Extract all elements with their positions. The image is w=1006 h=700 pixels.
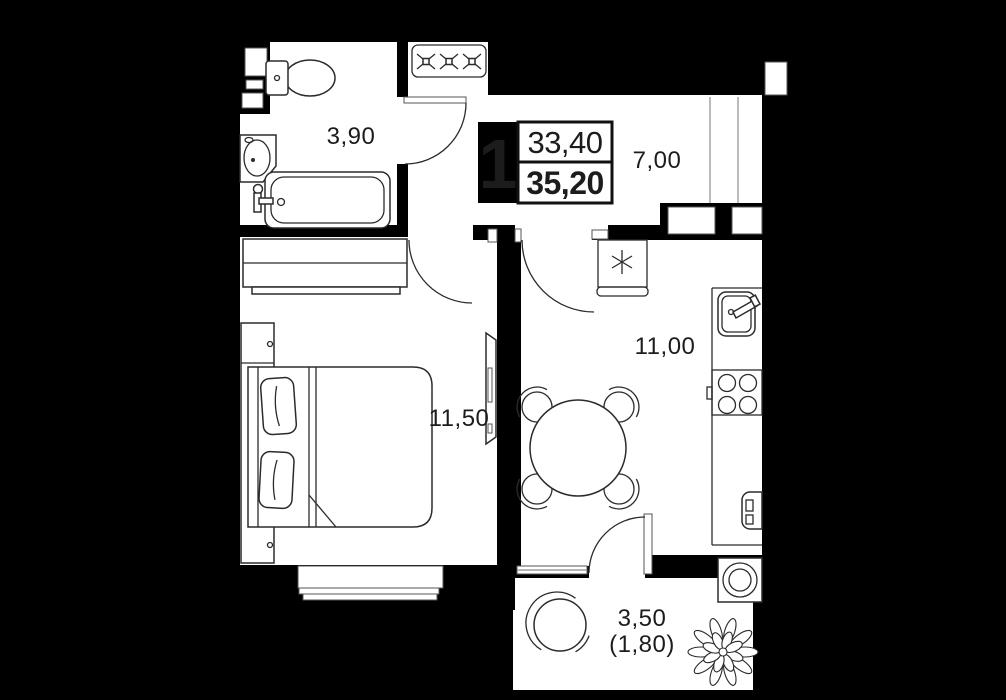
pillow-icon	[260, 377, 297, 435]
wall-bedroom-kitchen	[497, 237, 512, 578]
legend-living-area: 33,40	[527, 125, 602, 160]
kitchen-area-label: 11,00	[635, 333, 696, 360]
bathroom-door-opening	[397, 97, 408, 164]
ventilation-shaft-b	[732, 207, 762, 234]
balcony-window	[517, 566, 587, 574]
washing-machine-icon	[718, 558, 762, 602]
wall-panel-icon	[742, 492, 762, 529]
wall-bathroom-right-upper	[397, 42, 408, 97]
dresser-icon	[243, 239, 407, 294]
door-frame-kitchen-left	[515, 229, 521, 242]
bathroom-shaft-block	[236, 42, 270, 114]
door-frame-bedroom	[488, 229, 497, 242]
wall-hall-kitchen	[608, 225, 668, 240]
bedroom-window	[298, 566, 443, 600]
legend: 1 33,40 35,20	[478, 122, 612, 203]
kitchen-sink-icon	[718, 292, 760, 336]
legend-room-count: 1	[479, 125, 518, 203]
wall-window-sill-strip	[513, 574, 589, 578]
bedroom-door-opening	[408, 225, 473, 239]
floor-plan-drawing: 3,90 7,00 1 33,40 35,20	[0, 0, 1006, 700]
pillow-icon	[259, 451, 295, 509]
bathtub-icon	[254, 172, 391, 228]
balcony-area-label: 3,50	[618, 605, 667, 632]
floor-plan-page: 3,90 7,00 1 33,40 35,20	[0, 0, 1006, 700]
kitchen-door-opening	[521, 225, 592, 240]
bed-icon	[248, 367, 432, 527]
toilet-icon	[266, 60, 335, 96]
exterior-wall-notch	[765, 62, 787, 95]
dining-table-icon	[530, 400, 626, 496]
hallway-area-label: 7,00	[633, 147, 682, 174]
legend-total-area: 35,20	[526, 165, 604, 201]
door-frame-kitchen-right	[592, 230, 608, 239]
hallway-niche-floor	[408, 42, 488, 95]
balcony-weighted-area-label: (1,80)	[609, 631, 675, 658]
bedroom-area-label: 11,50	[429, 405, 490, 432]
wall-bathroom-right-lower	[397, 164, 408, 226]
bathroom-area-label: 3,90	[327, 123, 376, 150]
ventilation-shaft-a	[668, 207, 715, 234]
balcony-door-opening	[589, 566, 645, 578]
